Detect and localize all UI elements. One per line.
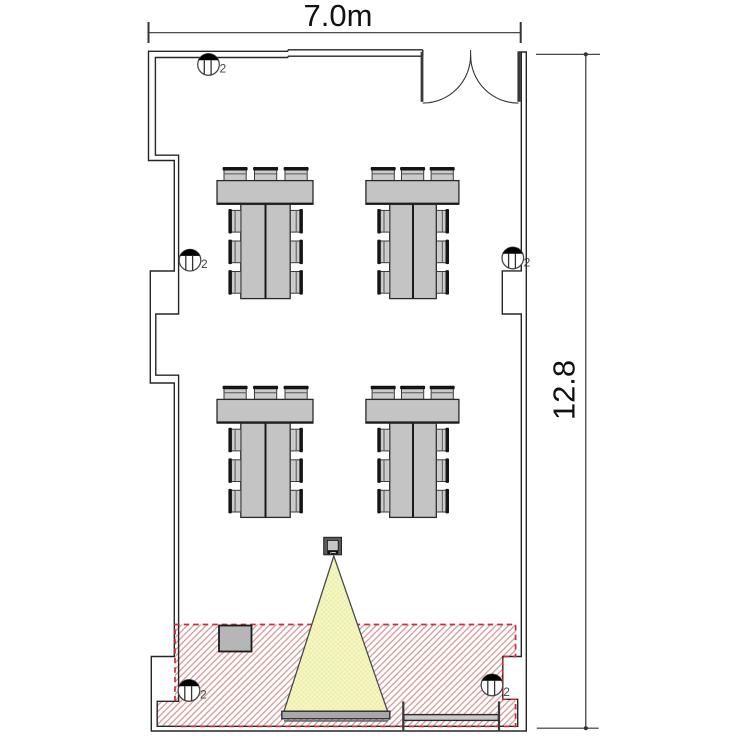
svg-text:2: 2 xyxy=(201,257,208,271)
svg-text:7.0m: 7.0m xyxy=(304,0,373,33)
svg-text:2: 2 xyxy=(220,62,227,76)
svg-text:12.8: 12.8 xyxy=(546,360,581,420)
svg-text:2: 2 xyxy=(200,688,207,702)
svg-text:2: 2 xyxy=(524,256,531,270)
svg-text:2: 2 xyxy=(503,685,510,699)
